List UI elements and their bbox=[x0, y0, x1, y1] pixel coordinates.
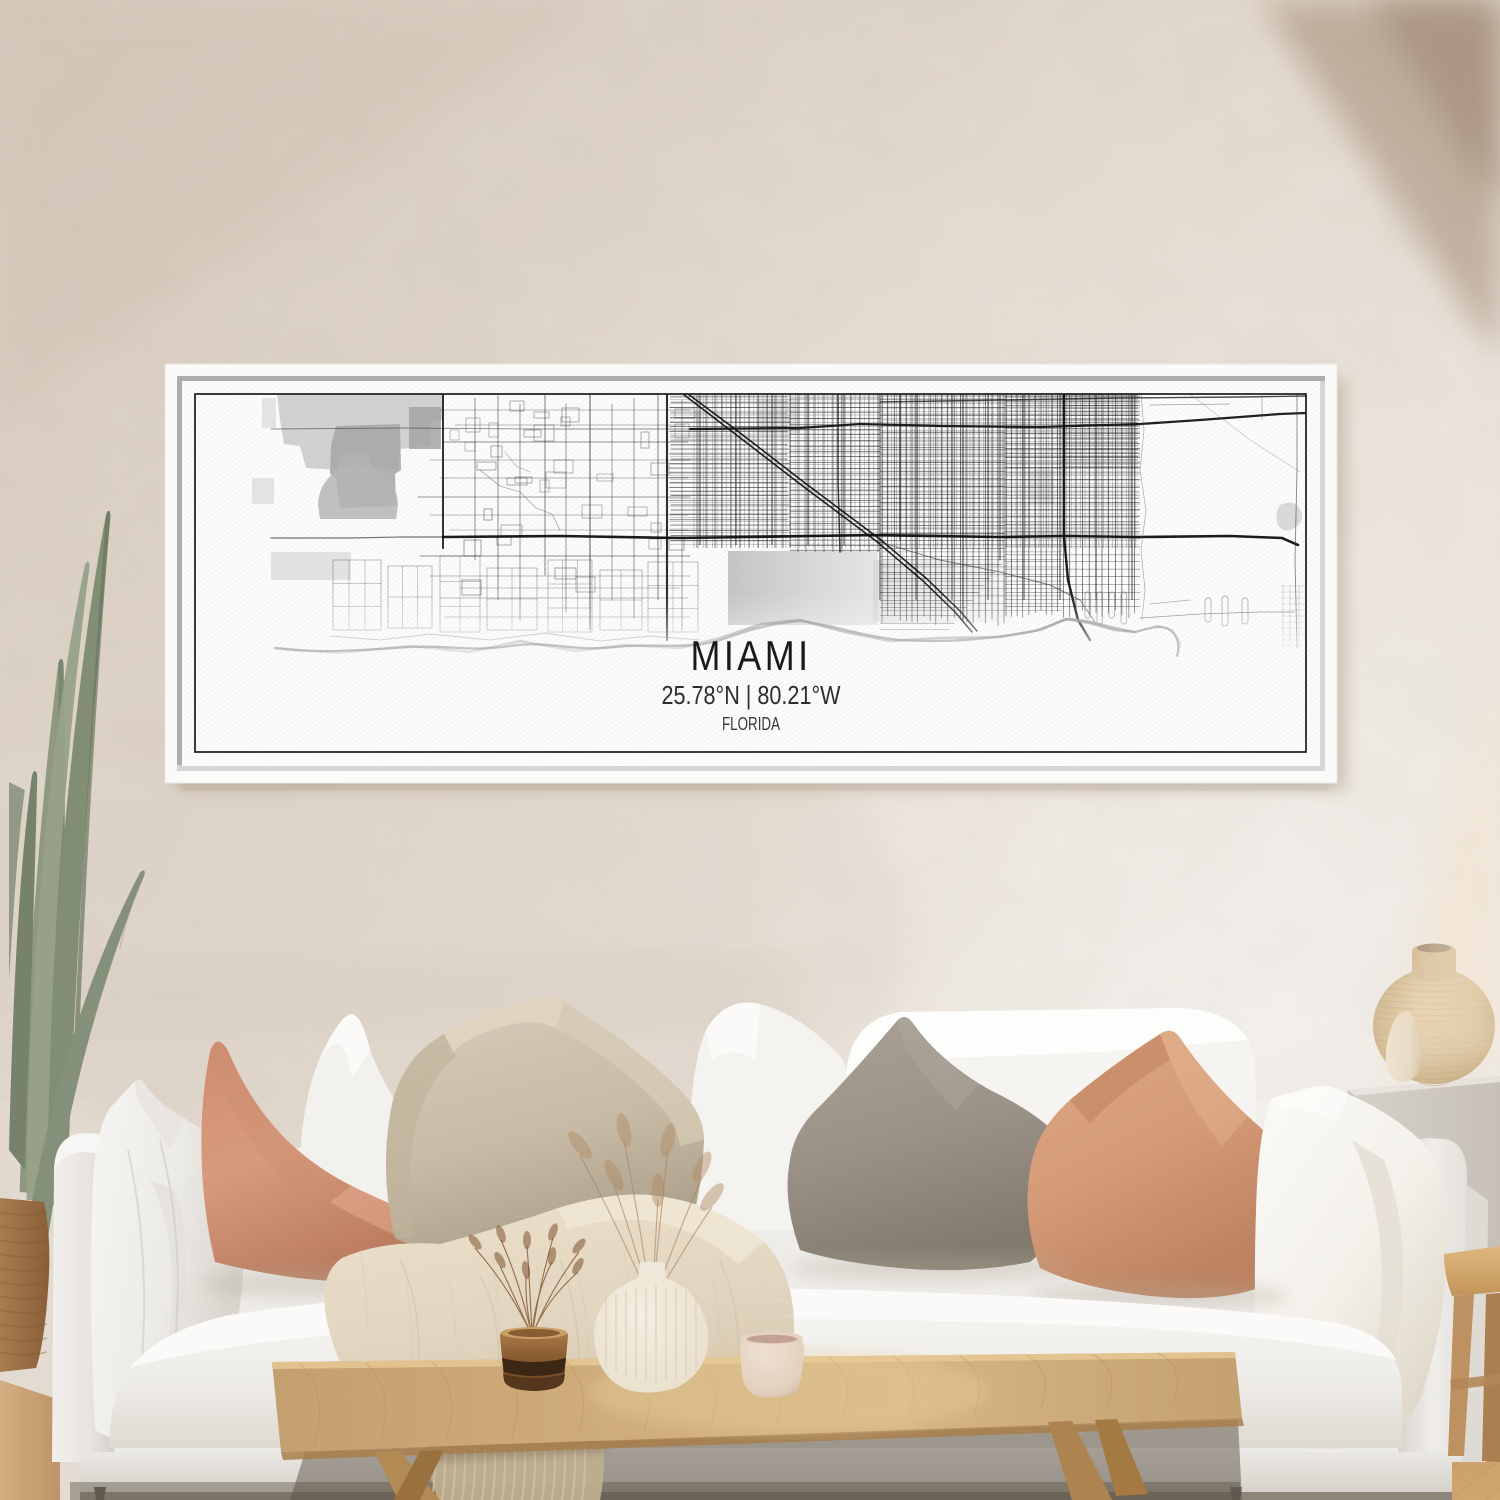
svg-text:MIAMI: MIAMI bbox=[691, 632, 812, 679]
svg-text:FLORIDA: FLORIDA bbox=[722, 714, 780, 734]
svg-text:25.78°N | 80.21°W: 25.78°N | 80.21°W bbox=[662, 680, 841, 710]
